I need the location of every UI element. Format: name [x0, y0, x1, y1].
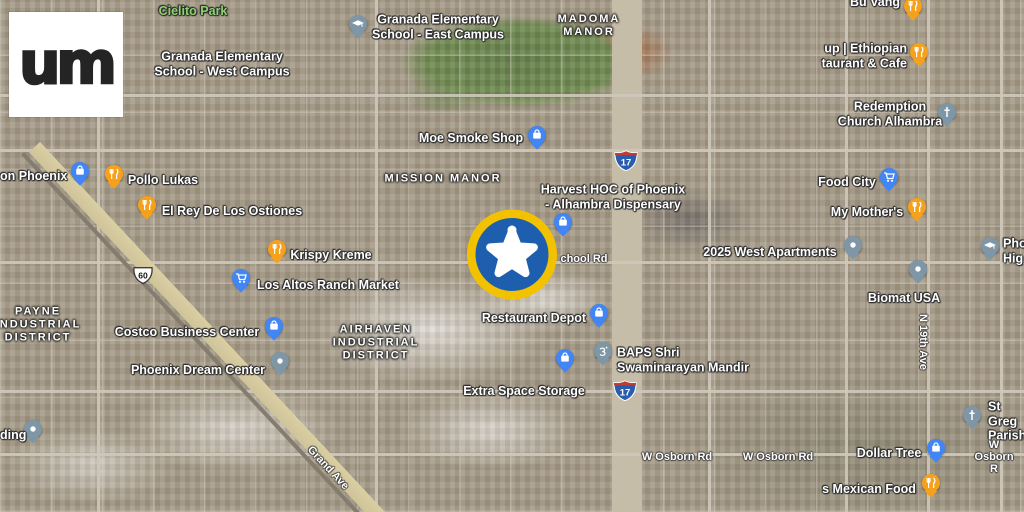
place-label[interactable]: Food City [818, 175, 876, 190]
area-label: MISSION MANOR [384, 173, 501, 186]
place-label[interactable]: Restaurant Depot [482, 311, 586, 326]
place-label[interactable]: Los Altos Ranch Market [257, 278, 399, 293]
place-label[interactable]: El Rey De Los Ostiones [162, 204, 302, 219]
place-label[interactable]: Cielito Park [159, 4, 228, 19]
place-label[interactable]: Biomat USA [868, 291, 940, 306]
place-label[interactable]: Phoenix Dream Center [131, 363, 265, 378]
place-label[interactable]: Costco Business Center [115, 325, 259, 340]
liveuamap-logo[interactable]: um [9, 12, 123, 117]
place-label[interactable]: up | Ethiopian taurant & Cafe [822, 42, 907, 71]
place-label[interactable]: My Mother's [831, 205, 903, 220]
place-label[interactable]: Pollo Lukas [128, 173, 198, 188]
area-label: PAYNE INDUSTRIAL DISTRICT [0, 306, 81, 345]
event-marker-sheriff-star[interactable] [464, 207, 560, 308]
place-label[interactable]: 2025 West Apartments [703, 245, 836, 260]
road-label: N 19th Ave [917, 314, 929, 370]
road-label: W Osborn R [974, 439, 1013, 475]
place-label[interactable]: on Phoenix [0, 169, 67, 184]
area-label: AIRHAVEN INDUSTRIAL DISTRICT [333, 324, 420, 363]
place-label[interactable]: Bu Vang [850, 0, 900, 9]
place-label[interactable]: Moe Smoke Shop [419, 131, 523, 146]
road-label: W Osborn Rd [743, 451, 813, 463]
road-label: Grand Ave [305, 444, 351, 492]
place-label[interactable]: St Greg Parish [988, 399, 1024, 443]
place-label[interactable]: Pho Hig [1003, 237, 1024, 266]
road-label: W Osborn Rd [642, 451, 712, 463]
place-label[interactable]: Dollar Tree [857, 446, 922, 461]
map-viewport[interactable]: 171760 Cielito ParkGranada Elementary Sc… [0, 0, 1024, 512]
place-label[interactable]: BAPS Shri Swaminarayan Mandir [617, 346, 749, 375]
liveuamap-logo-text: um [19, 34, 113, 92]
place-label[interactable]: Granada Elementary School - East Campus [372, 13, 504, 42]
place-label[interactable]: ding [0, 428, 26, 443]
place-label[interactable]: s Mexican Food [822, 482, 916, 497]
place-label[interactable]: Extra Space Storage [463, 384, 585, 399]
place-label[interactable]: Harvest HOC of Phoenix - Alhambra Dispen… [541, 183, 685, 212]
area-label: MADOMA MANOR [558, 13, 621, 39]
sheriff-star-icon [464, 207, 560, 303]
place-label[interactable]: Krispy Kreme [290, 248, 371, 263]
place-label[interactable]: Granada Elementary School - West Campus [154, 50, 289, 79]
road-label: chool Rd [560, 253, 607, 265]
place-label[interactable]: Redemption Church Alhambra [838, 100, 942, 129]
